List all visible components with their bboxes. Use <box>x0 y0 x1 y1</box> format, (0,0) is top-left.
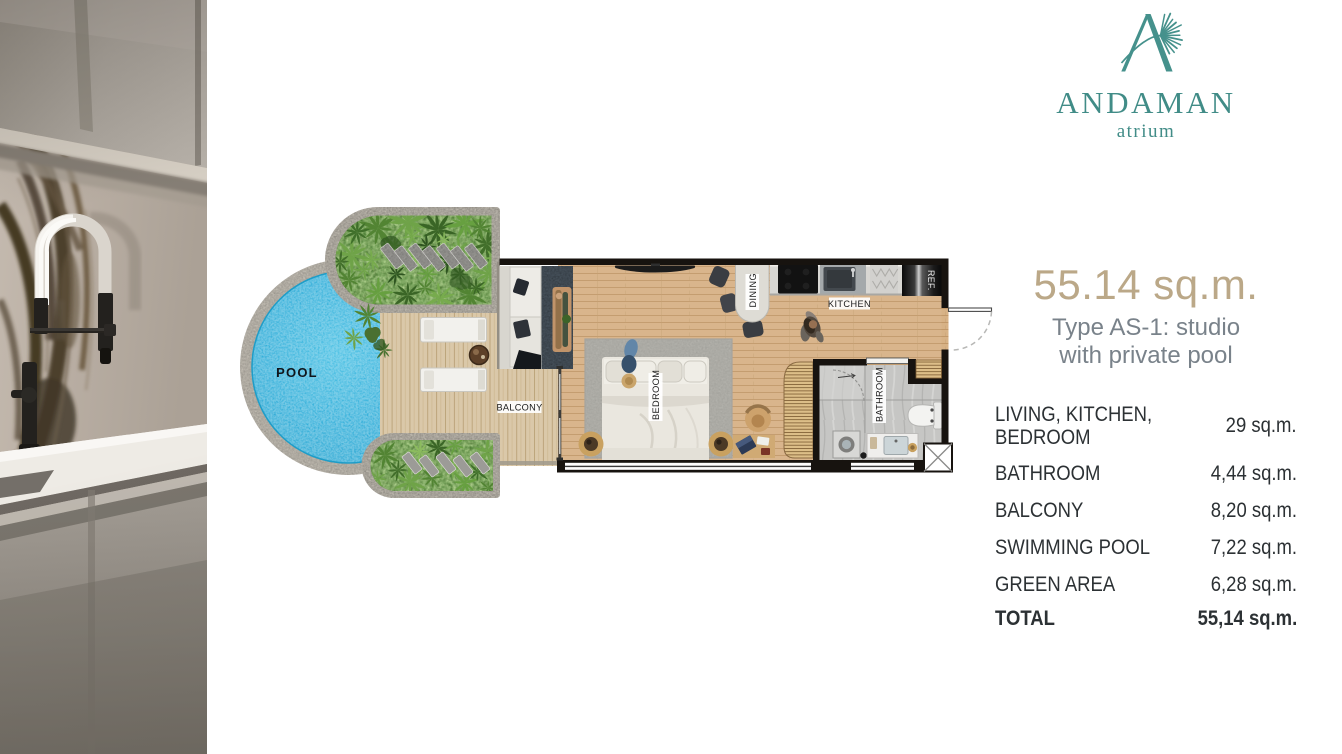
svg-text:POOL: POOL <box>276 365 318 380</box>
svg-text:KITCHEN: KITCHEN <box>828 299 871 309</box>
svg-text:BEDROOM: BEDROOM <box>651 370 661 420</box>
svg-text:BALCONY: BALCONY <box>496 403 542 413</box>
svg-text:atrium: atrium <box>1117 121 1176 142</box>
svg-text:REF.: REF. <box>926 270 936 291</box>
svg-text:BATHROOM: BATHROOM <box>875 367 885 422</box>
svg-text:DINING: DINING <box>748 273 758 308</box>
svg-text:ANDAMAN: ANDAMAN <box>1056 85 1235 120</box>
